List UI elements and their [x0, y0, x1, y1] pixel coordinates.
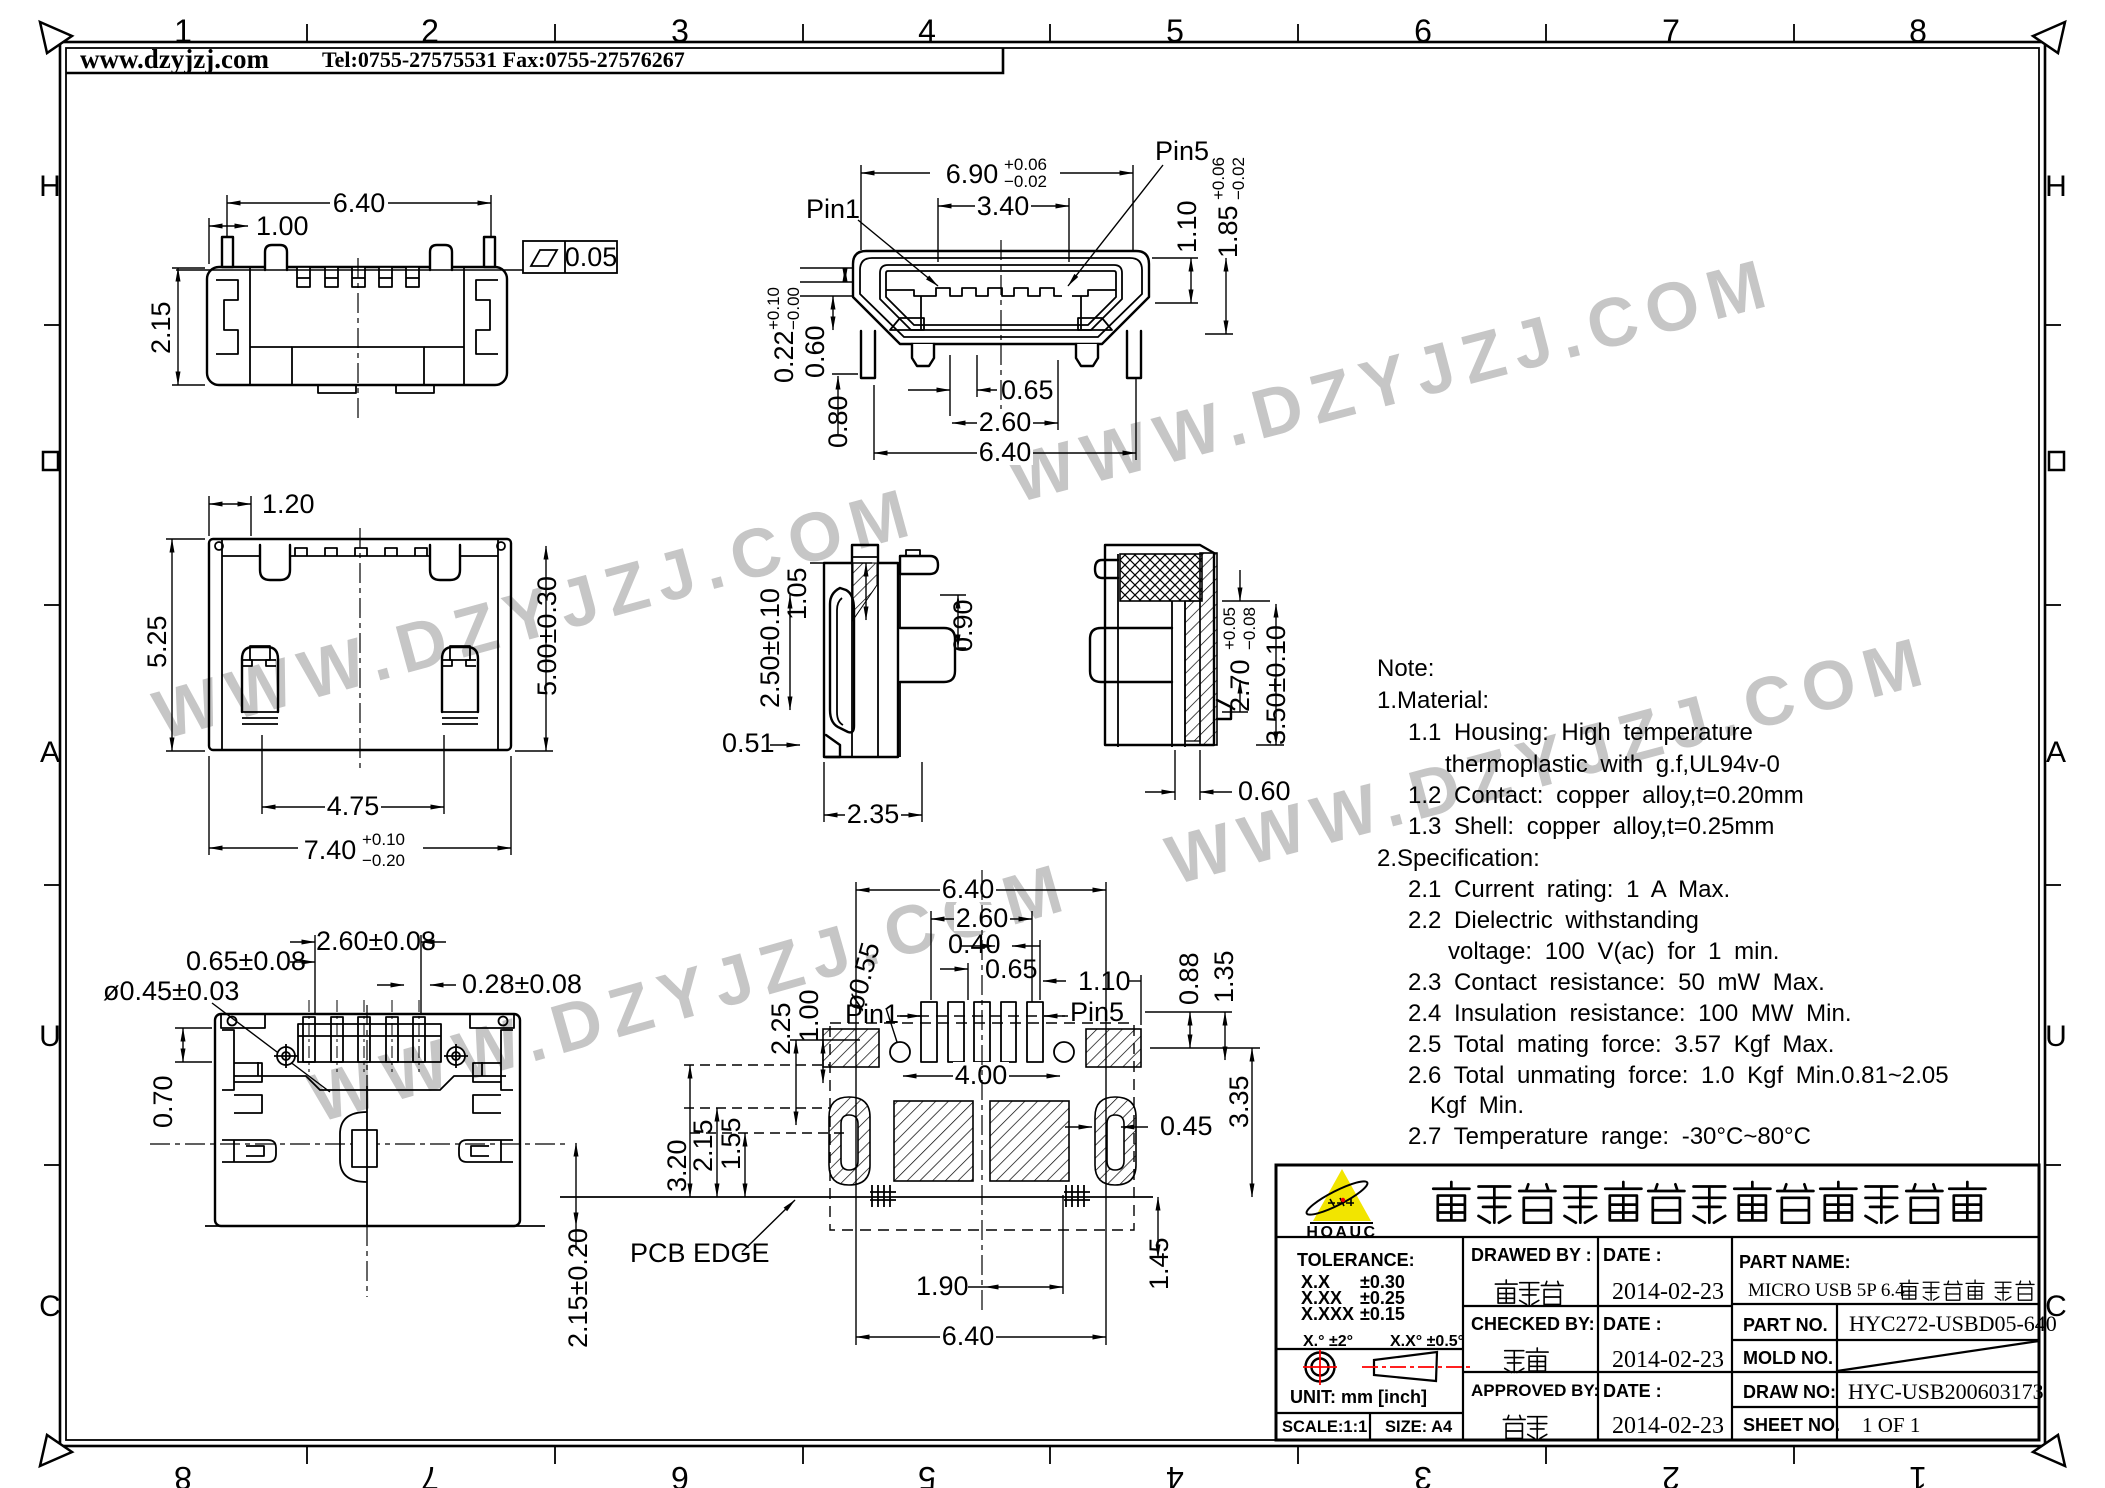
svg-text:C: C [39, 1290, 61, 1323]
svg-text:0.88: 0.88 [1174, 952, 1204, 1005]
svg-text:X.° ±2°: X.° ±2° [1303, 1333, 1353, 1350]
svg-text:1.2 Contact: copper alloy,t: 1.2 Contact: copper alloy,t=0.20mm [1408, 782, 1804, 809]
svg-text:0.28±0.08: 0.28±0.08 [462, 969, 582, 999]
svg-text:UNIT: mm [inch]: UNIT: mm [inch] [1290, 1387, 1427, 1407]
svg-text:0.65: 0.65 [985, 954, 1038, 984]
svg-text:4: 4 [918, 13, 936, 49]
svg-text:H: H [39, 170, 61, 203]
svg-text:+0.06: +0.06 [1209, 157, 1228, 200]
svg-text:1.55: 1.55 [716, 1117, 746, 1170]
svg-text:2014-02-23: 2014-02-23 [1612, 1279, 1724, 1305]
svg-text:DATE :: DATE : [1603, 1381, 1662, 1401]
svg-text:1.00: 1.00 [256, 211, 309, 241]
svg-text:2.50±0.10: 2.50±0.10 [755, 588, 785, 708]
svg-text:PCB EDGE: PCB EDGE [630, 1238, 770, 1268]
svg-text:7: 7 [421, 1460, 439, 1488]
svg-text:CHECKED BY:: CHECKED BY: [1471, 1314, 1595, 1334]
svg-text:Pin1: Pin1 [845, 999, 899, 1029]
svg-text:TOLERANCE:: TOLERANCE: [1297, 1250, 1415, 1270]
svg-text:ø0.45±0.03: ø0.45±0.03 [103, 976, 239, 1006]
svg-text:H: H [2045, 170, 2067, 203]
svg-text:5.25: 5.25 [142, 615, 172, 668]
svg-text:Note:: Note: [1377, 655, 1434, 682]
svg-text:−0.02: −0.02 [1229, 157, 1248, 200]
svg-text:2.15: 2.15 [688, 1119, 718, 1172]
svg-text:−0.08: −0.08 [1240, 607, 1259, 650]
svg-text:5.00±0.30: 5.00±0.30 [532, 576, 562, 696]
svg-text:SCALE:1:1: SCALE:1:1 [1282, 1418, 1367, 1436]
svg-text:thermoplastic with g.f,UL94v: thermoplastic with g.f,UL94v-0 [1445, 751, 1780, 778]
svg-text:2.5 Total mating force: 3.: 2.5 Total mating force: 3.57 Kgf Max. [1408, 1031, 1834, 1058]
svg-text:2.60±0.08: 2.60±0.08 [316, 926, 436, 956]
svg-text:2.3 Contact resistance: 50: 2.3 Contact resistance: 50 mW Max. [1408, 969, 1825, 996]
svg-text:Pin1: Pin1 [806, 194, 860, 224]
svg-text:Pin5: Pin5 [1155, 136, 1209, 166]
svg-text:1.05: 1.05 [782, 567, 812, 620]
svg-text:6.40: 6.40 [333, 188, 386, 218]
svg-text:2014-02-23: 2014-02-23 [1612, 1413, 1724, 1439]
svg-text:−0.02: −0.02 [1004, 172, 1047, 191]
svg-text:3: 3 [671, 13, 689, 49]
svg-text:2.25: 2.25 [766, 1002, 796, 1055]
svg-text:2.15±0.20: 2.15±0.20 [563, 1228, 593, 1348]
svg-text:0.90: 0.90 [948, 599, 978, 652]
svg-text:6.90: 6.90 [946, 159, 999, 189]
svg-text:APPROVED BY:: APPROVED BY: [1471, 1381, 1599, 1400]
svg-text:2.15: 2.15 [146, 301, 176, 354]
svg-text:2.6 Total unmating force:: 2.6 Total unmating force: 1.0 Kgf Min.0.… [1408, 1062, 1949, 1089]
svg-text:SHEET NO.: SHEET NO. [1743, 1415, 1840, 1435]
svg-text:1.10: 1.10 [1078, 966, 1131, 996]
svg-text:HYC-USB200603173: HYC-USB200603173 [1848, 1379, 2044, 1404]
svg-text:4.75: 4.75 [327, 791, 380, 821]
svg-text:4.00: 4.00 [955, 1060, 1008, 1090]
svg-text:3: 3 [1414, 1460, 1432, 1488]
svg-text:2.Specification:: 2.Specification: [1377, 845, 1540, 872]
svg-text:2: 2 [421, 13, 439, 49]
svg-text:Tel:0755-27575531 Fax:0755-27: Tel:0755-27575531 Fax:0755-27576267 [322, 47, 685, 72]
svg-text:1: 1 [1909, 1460, 1927, 1488]
svg-text:1.20: 1.20 [262, 489, 315, 519]
svg-text:2.4 Insulation resistance:: 2.4 Insulation resistance: 100 MW Min. [1408, 1000, 1852, 1027]
svg-text:1.1 Housing: High temperatu: 1.1 Housing: High temperature [1408, 719, 1753, 746]
svg-text:X.X° ±0.5°: X.X° ±0.5° [1390, 1333, 1464, 1350]
svg-text:2.1 Current rating: 1 A M: 2.1 Current rating: 1 A Max. [1408, 876, 1730, 903]
svg-text:1 OF 1: 1 OF 1 [1862, 1413, 1920, 1437]
svg-text:1.90: 1.90 [916, 1271, 969, 1301]
svg-text:1.45: 1.45 [1144, 1237, 1174, 1290]
svg-text:4: 4 [1166, 1460, 1184, 1488]
svg-text:1.3 Shell: copper alloy,t=0: 1.3 Shell: copper alloy,t=0.25mm [1408, 813, 1774, 840]
svg-text:0.60: 0.60 [1238, 776, 1291, 806]
svg-text:HYC272-USBD05-640: HYC272-USBD05-640 [1849, 1311, 2057, 1336]
svg-text:MICRO USB 5P 6.4: MICRO USB 5P 6.4 [1748, 1280, 1905, 1301]
svg-text:PART NAME:: PART NAME: [1739, 1252, 1851, 1272]
svg-text:6.40: 6.40 [979, 437, 1032, 467]
svg-text:6.40: 6.40 [942, 874, 995, 904]
svg-text:−0.00: −0.00 [784, 287, 803, 330]
svg-text:0.70: 0.70 [148, 1075, 178, 1128]
svg-text:1.10: 1.10 [1172, 200, 1202, 253]
svg-text:SIZE: A4: SIZE: A4 [1385, 1418, 1453, 1436]
svg-text:A: A [40, 736, 60, 769]
svg-text:0.45: 0.45 [1160, 1111, 1213, 1141]
svg-text:www.dzyjzj.com: www.dzyjzj.com [80, 44, 269, 74]
svg-text:0.60: 0.60 [800, 325, 830, 378]
svg-text:DATE :: DATE : [1603, 1245, 1662, 1265]
svg-text:PART NO.: PART NO. [1743, 1315, 1828, 1335]
svg-text:X.XXX: X.XXX [1301, 1304, 1354, 1324]
svg-text:HOAUC: HOAUC [1306, 1224, 1377, 1241]
svg-text:0.51: 0.51 [722, 728, 775, 758]
svg-text:8: 8 [174, 1460, 192, 1488]
svg-text:0.65±0.08: 0.65±0.08 [186, 946, 306, 976]
svg-text:0.65: 0.65 [1001, 375, 1054, 405]
svg-text:Kgf Min.: Kgf Min. [1430, 1092, 1524, 1119]
svg-text:7: 7 [1662, 13, 1680, 49]
svg-text:2014-02-23: 2014-02-23 [1612, 1347, 1724, 1373]
svg-text:U: U [2045, 1020, 2067, 1053]
svg-text:DATE :: DATE : [1603, 1314, 1662, 1334]
svg-text:5: 5 [1166, 13, 1184, 49]
svg-text:1.35: 1.35 [1209, 950, 1239, 1003]
svg-text:6: 6 [671, 1460, 689, 1488]
svg-text:3.35: 3.35 [1224, 1075, 1254, 1128]
svg-text:1.85: 1.85 [1213, 205, 1243, 258]
svg-text:MOLD NO.: MOLD NO. [1743, 1348, 1833, 1368]
svg-text:+0.05: +0.05 [1220, 607, 1239, 650]
svg-text:A: A [2046, 736, 2066, 769]
svg-text:−0.20: −0.20 [362, 851, 405, 870]
svg-text:±0.15: ±0.15 [1360, 1304, 1405, 1324]
svg-text:U: U [39, 1020, 61, 1053]
svg-text:2: 2 [1662, 1460, 1680, 1488]
svg-text:8: 8 [1909, 13, 1927, 49]
svg-text:5: 5 [918, 1460, 936, 1488]
svg-text:0.22: 0.22 [769, 330, 799, 383]
svg-text:voltage: 100 V(ac) for 1: voltage: 100 V(ac) for 1 min. [1448, 938, 1779, 965]
svg-text:+0.10: +0.10 [362, 830, 405, 849]
svg-text:2.7 Temperature range: -30°: 2.7 Temperature range: -30°C~80°C [1408, 1123, 1811, 1150]
svg-text:2.60: 2.60 [979, 407, 1032, 437]
svg-text:2.35: 2.35 [847, 799, 900, 829]
svg-text:7.40: 7.40 [304, 835, 357, 865]
svg-text:2.2 Dielectric withstanding: 2.2 Dielectric withstanding [1408, 907, 1699, 934]
svg-text:3.40: 3.40 [977, 191, 1030, 221]
svg-text:+0.10: +0.10 [764, 287, 783, 330]
svg-text:6.40: 6.40 [942, 1321, 995, 1351]
svg-text:1.Material:: 1.Material: [1377, 687, 1489, 714]
svg-text:1.00: 1.00 [794, 989, 824, 1042]
svg-text:0.05: 0.05 [565, 242, 618, 272]
svg-text:6: 6 [1414, 13, 1432, 49]
svg-text:DRAWED BY :: DRAWED BY : [1471, 1245, 1592, 1265]
svg-text:DRAW NO:: DRAW NO: [1743, 1382, 1836, 1402]
svg-text:Pin5: Pin5 [1070, 997, 1124, 1027]
